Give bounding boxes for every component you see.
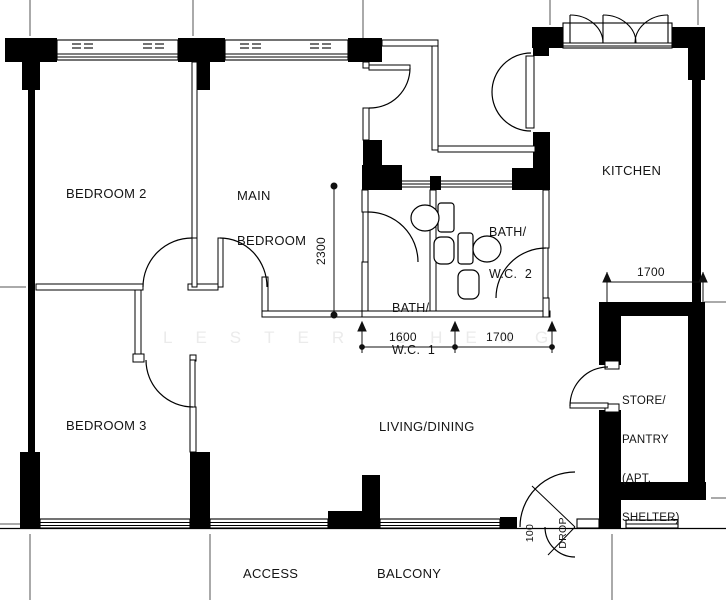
kitchen-service-door-arc-lower	[492, 92, 531, 131]
store-line4: SHELTER)	[622, 512, 680, 525]
room-label-bedroom3: BEDROOM 3	[66, 418, 147, 433]
toilet-cistern	[438, 203, 454, 232]
main-bedroom-line1: MAIN	[237, 188, 306, 203]
room-label-kitchen: KITCHEN	[602, 163, 661, 178]
store-line1: STORE/	[622, 395, 680, 408]
utility-door-arc	[369, 68, 410, 108]
bath2-line1: BATH/	[489, 225, 532, 239]
dimension-1600: 1600	[389, 330, 417, 344]
toilet-cistern	[458, 233, 473, 264]
bedroom2-door-arc	[143, 238, 192, 287]
room-label-bath-wc-1: BATH/ W.C. 1	[392, 273, 435, 385]
dimension-1700-store: 1700	[637, 265, 665, 279]
drop-line2: DROP	[558, 507, 569, 559]
room-label-main-bedroom: MAIN BEDROOM	[237, 158, 306, 278]
room-label-store-pantry: STORE/ PANTRY (APT. SHELTER)	[622, 369, 680, 551]
floor-plan: LESTER CHENG	[0, 0, 726, 600]
room-label-bedroom2: BEDROOM 2	[66, 186, 147, 201]
main-bedroom-line2: BEDROOM	[237, 233, 306, 248]
store-line3: (APT.	[622, 473, 680, 486]
bath1-line1: BATH/	[392, 301, 435, 315]
bath2-line2: W.C. 2	[489, 267, 532, 281]
dimension-1700-bath: 1700	[486, 330, 514, 344]
wash-basin	[458, 270, 479, 299]
bedroom3-door-arc	[146, 360, 193, 407]
dimension-100-drop: 100 DROP	[503, 507, 591, 559]
dimension-2300: 2300	[314, 231, 328, 271]
store-line2: PANTRY	[622, 434, 680, 447]
area-label-balcony: BALCONY	[377, 566, 441, 581]
kitchen-service-door-arc-upper	[492, 53, 531, 92]
bath1-line2: W.C. 1	[392, 343, 435, 357]
room-label-living-dining: LIVING/DINING	[379, 419, 475, 434]
wash-basin	[434, 237, 454, 264]
toilet-bowl	[411, 205, 439, 231]
area-label-access: ACCESS	[243, 566, 298, 581]
floor-plan-drawing	[0, 0, 726, 600]
room-label-bath-wc-2: BATH/ W.C. 2	[489, 197, 532, 309]
drop-line1: 100	[525, 507, 536, 559]
walls	[5, 27, 706, 528]
